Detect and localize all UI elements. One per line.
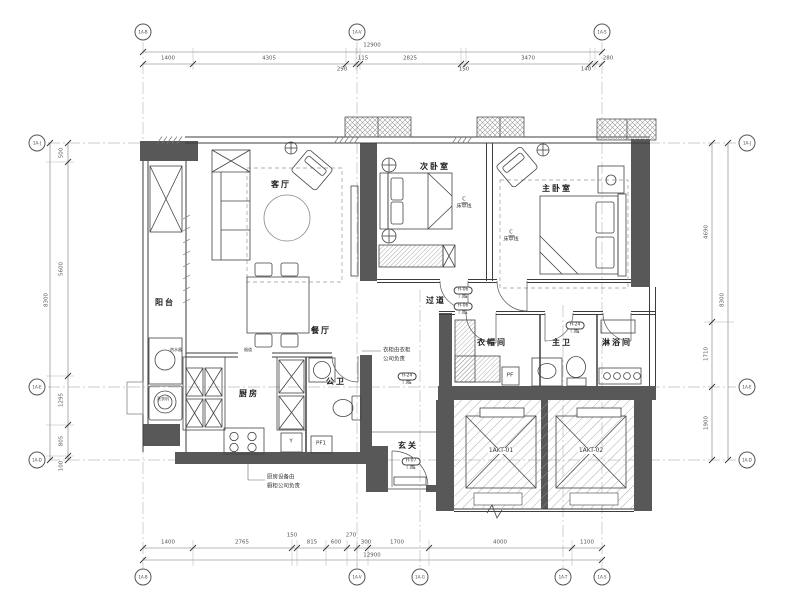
dim-top-3: 115	[358, 56, 369, 62]
grid-bubble-bottom-5: 1A-S	[594, 569, 611, 586]
threshold-text: 门槛	[458, 295, 467, 300]
room-label-shower: 淋浴间	[602, 339, 632, 347]
dim-left-1: 5600	[59, 262, 65, 276]
armchair-master	[496, 146, 539, 188]
ceiling-light	[537, 144, 549, 156]
dining-table	[247, 263, 309, 347]
hatch-blocks	[345, 117, 656, 140]
elevator-label-2: 1AKT-02	[578, 448, 604, 454]
grid-bubble-bottom-1: 1A-B	[135, 569, 152, 586]
grid-bubble-left-3: 1A-D	[29, 452, 46, 469]
note-wardrobe-line1: 衣柜由衣柜	[383, 348, 411, 354]
dim-right-total: 8300	[720, 293, 726, 307]
dim-bottom-total: 12900	[363, 553, 381, 559]
note-kitchen-line2: 橱柜公司负责	[267, 484, 300, 490]
dim-top-7: 140	[581, 67, 592, 73]
dim-bottom-7: 1700	[390, 540, 404, 546]
grid-bubble-top-1: 1A-B	[135, 24, 152, 41]
threshold-tag-h06-a: H-06 门槛	[454, 287, 473, 300]
threshold-text: 门槛	[406, 466, 415, 471]
dim-left-2: 1295	[59, 393, 65, 407]
dim-right-0: 4690	[704, 225, 710, 239]
threshold-text: 门槛	[458, 311, 467, 316]
room-label-foyer: 玄关	[398, 442, 418, 450]
dim-top-2: 290	[337, 67, 348, 73]
dim-top-4: 2825	[403, 56, 417, 62]
dim-top-6: 3470	[521, 56, 535, 62]
bed-centerline-label-2: C 床中线	[503, 230, 518, 243]
dim-left-0: 500	[59, 148, 65, 159]
grid-bubble-bottom-3: 1A-G	[412, 569, 429, 586]
grid-bubble-left-1: 1A-J	[29, 135, 46, 152]
bed-secondary	[379, 158, 455, 267]
shaft-y-label: Y	[289, 439, 292, 445]
centerline-text: 床中线	[456, 204, 471, 210]
dim-right-1: 1710	[704, 347, 710, 361]
threshold-tag-h24-b: H-24 门槛	[398, 373, 417, 386]
side-table	[285, 142, 297, 154]
threshold-tag-h07: H-07 门槛	[402, 458, 421, 471]
sofa	[212, 150, 250, 260]
tag-bubble: H-07	[402, 458, 421, 466]
room-label-master: 主卧室	[542, 185, 572, 193]
centerline-symbol: C	[508, 230, 514, 237]
grid-bubble-top-3: 1A-S	[594, 24, 611, 41]
room-label-master-bath: 主卫	[552, 339, 572, 347]
room-label-kitchen: 厨房	[239, 390, 259, 398]
dim-right-2: 1900	[704, 416, 710, 430]
dim-left-4: 100	[59, 461, 65, 472]
room-label-dining: 餐厅	[311, 327, 331, 335]
room-label-balcony: 阳台	[155, 299, 175, 307]
grid-bubble-left-2: 1A-E	[29, 379, 46, 396]
dim-top-total: 12900	[363, 43, 381, 49]
note-wardrobe-line2: 公司负责	[383, 357, 405, 363]
floorplan-sheet: 客厅 次卧室 主卧室 阳台 餐厅 厨房 公卫 过道 衣帽间 主卫 淋浴间 玄关 …	[0, 0, 800, 607]
dim-top-0: 1400	[161, 56, 175, 62]
dim-bottom-8: 4000	[493, 540, 507, 546]
grid-bubble-bottom-2: 1A-V	[349, 569, 366, 586]
room-label-guest-bath: 公卫	[326, 378, 346, 386]
centerline-text: 床中线	[503, 237, 518, 243]
room-label-corridor: 过道	[426, 297, 446, 305]
threshold-text: 门槛	[402, 381, 411, 386]
room-label-cloakroom: 衣帽间	[477, 339, 507, 347]
room-label-living: 客厅	[271, 181, 291, 189]
dim-top-5: 150	[459, 67, 470, 73]
floorplan-linework	[0, 0, 800, 607]
shaft-pf1-label: PF1	[316, 441, 326, 447]
tag-bubble: H-06	[454, 287, 473, 295]
bed-centerline-label-1: C 床中线	[456, 197, 471, 210]
dim-bottom-1: 2765	[235, 540, 249, 546]
note-kitchen-line1: 厨房设备由	[267, 475, 295, 481]
elevator-label-1: 1AKT-01	[488, 448, 514, 454]
dim-bottom-2: 150	[287, 533, 298, 539]
washer-label: 洗衣机	[157, 397, 169, 401]
threshold-text: 门槛	[570, 330, 579, 335]
tag-bubble: H-24	[398, 373, 417, 381]
grid-bubble-bottom-4: 1A-T	[555, 569, 572, 586]
threshold-tag-h24-a: H-24 门槛	[566, 322, 585, 335]
centerline-symbol: C	[461, 197, 467, 204]
dim-bottom-3: 815	[307, 540, 318, 546]
kitchen-counter	[183, 357, 306, 454]
dim-bottom-5: 270	[346, 533, 357, 539]
shaft-pf-label: PF	[507, 373, 513, 379]
tag-bubble: H-24	[566, 322, 585, 330]
tag-bubble: H-06	[454, 303, 473, 311]
grid-bubble-right-2: 1A-E	[739, 379, 756, 396]
dim-bottom-0: 1400	[161, 540, 175, 546]
dim-left-total: 8300	[44, 293, 50, 307]
grid-bubble-right-1: 1A-J	[739, 135, 756, 152]
grid-bubble-top-2: 1A-V	[349, 24, 366, 41]
round-rug	[264, 195, 310, 241]
dim-top-8: 280	[603, 56, 614, 62]
shower-fixtures	[599, 320, 641, 384]
grid-bubble-right-3: 1A-D	[739, 452, 756, 469]
water-heater-label: 热水器	[170, 348, 182, 352]
balcony-units	[127, 166, 182, 420]
dim-top-1: 4305	[262, 56, 276, 62]
dim-bottom-9: 1100	[580, 540, 594, 546]
dim-bottom-4: 600	[331, 540, 342, 546]
room-label-bedroom2: 次卧室	[420, 163, 450, 171]
shoe-cabinet	[394, 477, 426, 485]
armchair-living	[291, 149, 334, 191]
threshold-tag-h06-b: H-06 门槛	[454, 303, 473, 316]
elevator-shafts	[454, 400, 634, 518]
guest-bath-fixtures	[309, 358, 361, 420]
bed-master	[540, 166, 626, 276]
dim-left-3: 805	[59, 436, 65, 447]
dim-bottom-6: 300	[361, 540, 372, 546]
flue-label: 烟道	[244, 348, 252, 352]
